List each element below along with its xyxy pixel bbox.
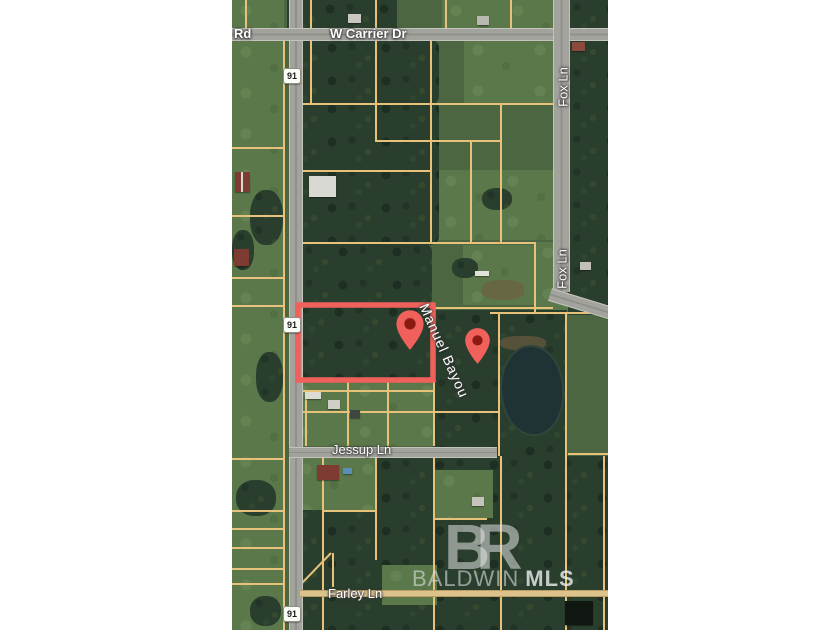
parcel-line <box>232 215 283 217</box>
watermark-name: BALDWIN <box>412 566 519 591</box>
parcel-line <box>603 456 605 630</box>
property-pin-secondary[interactable] <box>464 327 491 365</box>
parcel-line <box>283 39 285 630</box>
parcel-line <box>534 242 536 312</box>
building-house <box>328 400 340 409</box>
watermark-suffix: MLS <box>525 566 574 591</box>
building-house <box>348 14 361 23</box>
parcel-line <box>433 456 435 630</box>
building-barn <box>235 172 250 192</box>
terrain-field <box>232 0 284 630</box>
building-barn <box>309 176 336 197</box>
swimming-pool <box>343 468 352 474</box>
building-house <box>475 271 489 276</box>
parcel-line <box>232 583 283 585</box>
parcel-line <box>232 528 283 530</box>
pond <box>500 345 564 436</box>
satellite-map[interactable]: Rd W Carrier Dr Fox Ln Fox Ln Jessup Ln … <box>232 0 608 630</box>
route-91-shield-middle: 91 <box>283 317 301 333</box>
parcel-line <box>245 0 247 28</box>
building-house <box>305 392 321 399</box>
road-label-w-carrier-dr: W Carrier Dr <box>330 26 407 41</box>
building-dark-roof <box>565 601 593 625</box>
terrain-forest <box>300 243 432 307</box>
building-house <box>580 262 591 270</box>
dirt-patch <box>482 280 524 300</box>
road-w-carrier-dr <box>232 28 608 41</box>
parcel-line <box>232 147 283 149</box>
parcel-line <box>289 411 498 413</box>
parcel-line <box>232 458 283 460</box>
terrain-field <box>464 39 553 103</box>
parcel-line <box>310 39 312 103</box>
parcel-line <box>500 103 502 242</box>
parcel-line <box>498 312 500 456</box>
parcel-line <box>289 170 430 172</box>
parcel-line <box>232 510 283 512</box>
parcel-line <box>470 140 472 242</box>
road-route-91 <box>289 0 303 630</box>
parcel-line <box>232 568 283 570</box>
parcel-line <box>232 277 283 279</box>
parcel-line <box>322 510 375 512</box>
parcel-line <box>433 380 435 446</box>
tree-cluster <box>482 188 512 210</box>
parcel-line <box>289 103 553 105</box>
baldwin-mls-text-watermark: BALDWINMLS <box>412 566 575 592</box>
mls-listing-map-screenshot: Rd W Carrier Dr Fox Ln Fox Ln Jessup Ln … <box>0 0 840 630</box>
road-label-fox-ln-lower: Fox Ln <box>555 249 570 289</box>
parcel-line <box>433 307 553 309</box>
parcel-line <box>375 0 377 28</box>
terrain-forest <box>289 100 439 245</box>
building-house <box>472 497 484 506</box>
parcel-line <box>568 453 608 455</box>
parcel-line <box>510 0 512 28</box>
building-house <box>477 16 489 25</box>
parcel-line <box>445 0 447 28</box>
parcel-line <box>310 0 312 28</box>
road-label-fox-ln-upper: Fox Ln <box>556 67 571 107</box>
tree-cluster <box>256 352 283 402</box>
road-label-jessup-ln: Jessup Ln <box>332 442 391 457</box>
route-91-shield-top: 91 <box>283 68 301 84</box>
parcel-line <box>375 456 377 560</box>
terrain-field <box>442 0 553 28</box>
tree-cluster <box>250 190 283 245</box>
tree-cluster <box>250 596 281 626</box>
building-house <box>572 42 585 51</box>
building-barn <box>234 249 249 266</box>
parcel-line <box>232 305 283 307</box>
building-house <box>317 465 339 480</box>
parcel-line <box>289 242 534 244</box>
route-91-shield-bottom: 91 <box>283 606 301 622</box>
road-label-farley-ln: Farley Ln <box>328 586 382 601</box>
parcel-line <box>375 39 377 140</box>
parcel-line <box>332 553 334 587</box>
road-jessup-ln <box>289 447 497 458</box>
road-label-rd: Rd <box>234 26 251 41</box>
parcel-line <box>322 456 324 630</box>
building-house <box>350 410 360 418</box>
parcel-line <box>232 547 283 549</box>
parcel-line <box>375 140 500 142</box>
